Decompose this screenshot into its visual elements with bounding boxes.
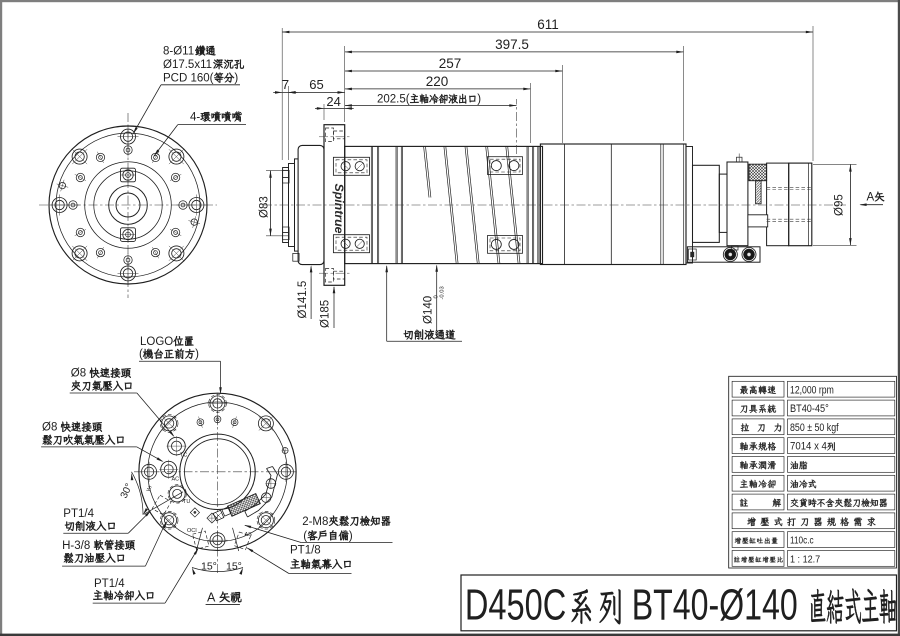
svg-text:65: 65: [309, 77, 323, 92]
svg-text:A: A: [867, 192, 875, 204]
svg-text:): ): [477, 94, 481, 106]
svg-text:PCD 160(: PCD 160(: [163, 73, 214, 85]
svg-text:): ): [349, 530, 353, 542]
svg-text:TC: TC: [180, 453, 187, 459]
svg-text:Ø8: Ø8: [71, 368, 86, 380]
svg-text:OCI: OCI: [187, 528, 197, 534]
svg-text:Ø185: Ø185: [320, 300, 332, 328]
svg-text:Ø17.5x11: Ø17.5x11: [163, 59, 212, 71]
svg-text:Ø95: Ø95: [834, 194, 846, 216]
svg-text:110c.c: 110c.c: [790, 536, 814, 547]
svg-text:AC: AC: [172, 477, 180, 483]
svg-text:PT1/4: PT1/4: [63, 508, 94, 520]
svg-text:PT1/8: PT1/8: [290, 545, 321, 557]
svg-text:AS: AS: [245, 532, 253, 538]
svg-text:850 ± 50 kgf: 850 ± 50 kgf: [790, 422, 839, 434]
svg-text:202.5(: 202.5(: [377, 94, 410, 106]
svg-text:PT1/4: PT1/4: [94, 578, 125, 590]
svg-text:Spintrue: Spintrue: [332, 184, 344, 235]
svg-text:611: 611: [537, 17, 559, 32]
svg-text:H-3/8: H-3/8: [62, 540, 90, 552]
svg-text:Ø141.5: Ø141.5: [297, 281, 309, 319]
svg-text:24: 24: [326, 94, 340, 109]
svg-text:TU: TU: [183, 499, 190, 505]
svg-text:LOGO: LOGO: [140, 336, 173, 348]
svg-text:Ø83: Ø83: [258, 196, 270, 218]
svg-text:220: 220: [426, 74, 449, 89]
svg-text:257: 257: [439, 56, 462, 71]
svg-text:(: (: [139, 349, 143, 361]
svg-text:A: A: [207, 590, 216, 604]
svg-text:1 : 12.7: 1 : 12.7: [790, 555, 820, 566]
svg-text:4-: 4-: [190, 112, 200, 124]
svg-text:7: 7: [282, 77, 289, 92]
svg-text:397.5: 397.5: [495, 37, 529, 52]
svg-text:BT40-45°: BT40-45°: [790, 403, 829, 415]
svg-text:): ): [195, 349, 199, 361]
svg-text:2-M8: 2-M8: [302, 516, 328, 528]
svg-text:15°: 15°: [201, 561, 217, 573]
svg-text:D450C: D450C: [465, 580, 566, 629]
svg-text:Ø8: Ø8: [42, 422, 57, 434]
svg-text:-0.03: -0.03: [440, 286, 446, 299]
svg-text:12,000 rpm: 12,000 rpm: [790, 384, 834, 396]
svg-text:Ø140: Ø140: [423, 296, 435, 324]
svg-text:): ): [234, 73, 238, 85]
svg-text:7014 x 4: 7014 x 4: [790, 441, 827, 453]
svg-text:BT40-Ø140: BT40-Ø140: [632, 580, 798, 629]
svg-text:(: (: [303, 530, 307, 542]
svg-text:15°: 15°: [226, 561, 242, 573]
svg-text:8-Ø11: 8-Ø11: [163, 46, 194, 58]
